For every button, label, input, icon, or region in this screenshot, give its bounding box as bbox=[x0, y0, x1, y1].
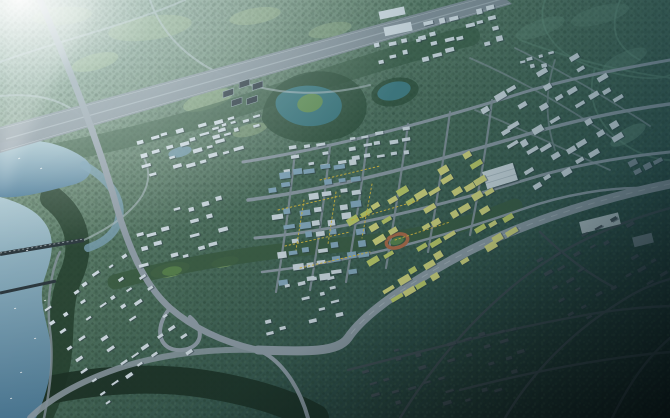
aerial-city-rendering: Aerial bird's-eye rendering of a planned… bbox=[0, 0, 670, 418]
vignette bbox=[0, 0, 670, 418]
rendering-scene bbox=[0, 0, 670, 418]
